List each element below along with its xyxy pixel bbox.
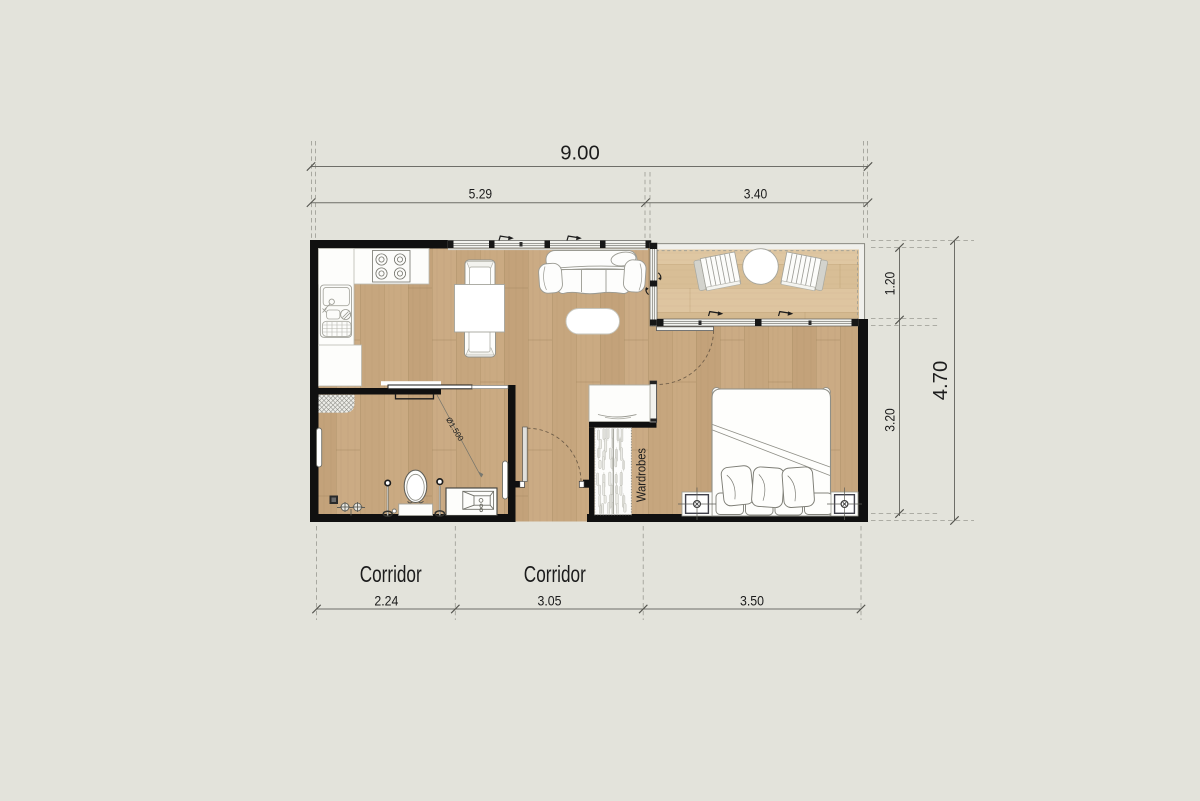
svg-text:9.00: 9.00 <box>560 143 599 165</box>
svg-text:1.20: 1.20 <box>882 272 898 296</box>
svg-text:5.29: 5.29 <box>469 185 493 201</box>
svg-text:2.24: 2.24 <box>374 592 398 608</box>
svg-text:Wardrobes: Wardrobes <box>634 448 649 502</box>
svg-text:4.70: 4.70 <box>930 361 952 400</box>
svg-text:Corridor: Corridor <box>360 561 422 587</box>
svg-text:3.50: 3.50 <box>740 592 764 608</box>
svg-text:3.40: 3.40 <box>744 185 768 201</box>
svg-text:3.20: 3.20 <box>882 408 898 432</box>
svg-text:3.05: 3.05 <box>538 592 562 608</box>
svg-text:Corridor: Corridor <box>524 561 586 587</box>
